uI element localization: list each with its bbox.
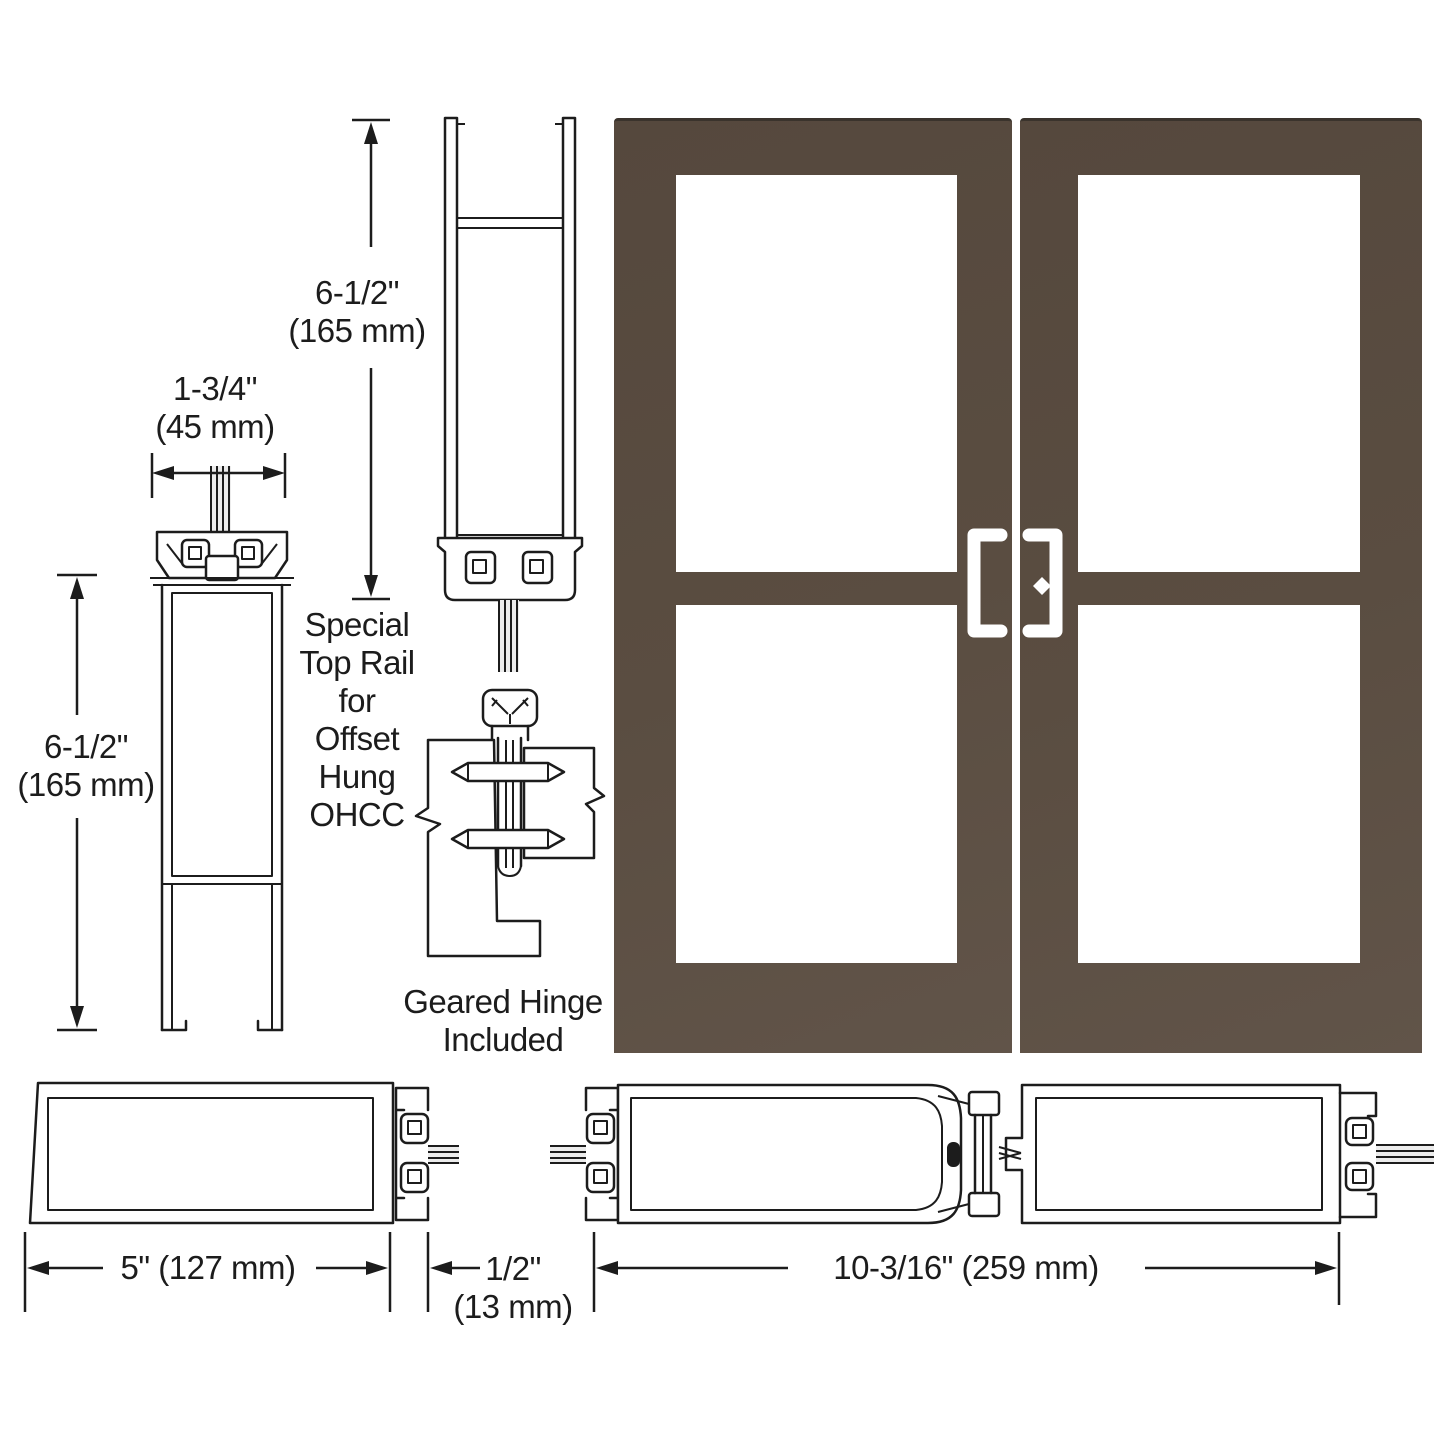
right-door-lower-glass [1078, 605, 1360, 963]
left-door-lower-glass [676, 605, 957, 963]
bottom-rail-vertical-section [150, 466, 294, 1030]
special-top-rail-vertical-section [438, 118, 582, 672]
right-door-leaf [1020, 118, 1422, 1053]
right-door-upper-glass [1078, 175, 1360, 572]
geared-hinge-detail [416, 690, 604, 956]
dimension-top-rail-width [152, 453, 285, 498]
dimension-label-meeting-stile-gap: 1/2" (13 mm) [453, 1250, 572, 1326]
geared-hinge-note: Geared Hinge Included [403, 983, 602, 1059]
left-door-upper-glass [676, 175, 957, 572]
dimension-top-rail-height [352, 120, 390, 599]
dimension-label-hinge-stile-pair-width: 10-3/16" (259 mm) [833, 1249, 1099, 1287]
special-top-rail-note: Special Top Rail for Offset Hung OHCC [299, 606, 414, 834]
dimension-label-bottom-rail-width: 5" (127 mm) [121, 1249, 296, 1287]
technical-drawing-canvas: 1-3/4" (45 mm) 6-1/2" (165 mm) 6-1/2" (1… [0, 0, 1445, 1445]
dimension-label-top-rail-height: 6-1/2" (165 mm) [288, 274, 425, 350]
dimension-label-top-rail-width: 1-3/4" (45 mm) [155, 370, 274, 446]
lock-stile-horizontal-section [30, 1083, 459, 1223]
hinge-stile-pair-horizontal-section [550, 1085, 1434, 1223]
left-door-leaf [614, 118, 1012, 1053]
dimension-label-bottom-rail-height: 6-1/2" (165 mm) [17, 728, 154, 804]
